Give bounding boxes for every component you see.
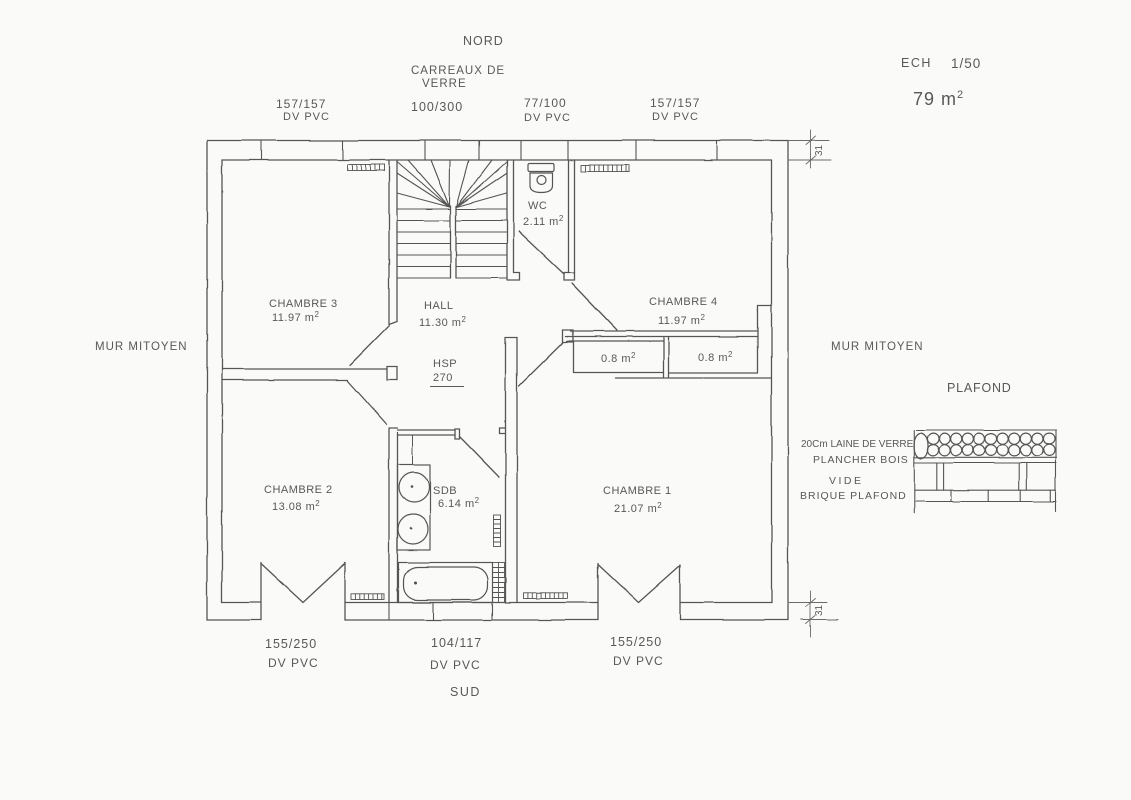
svg-text:MUR MITOYEN: MUR MITOYEN (831, 341, 924, 353)
svg-text:CARREAUX DE: CARREAUX DE (411, 65, 505, 77)
svg-text:13.08 m2: 13.08 m2 (272, 499, 320, 513)
svg-text:CHAMBRE 2: CHAMBRE 2 (264, 484, 333, 496)
svg-text:155/250: 155/250 (610, 635, 662, 649)
svg-text:DV PVC: DV PVC (652, 111, 699, 123)
svg-text:CHAMBRE 4: CHAMBRE 4 (649, 296, 718, 308)
svg-text:CHAMBRE 3: CHAMBRE 3 (269, 298, 338, 310)
svg-text:DV PVC: DV PVC (430, 658, 481, 672)
svg-text:DV PVC: DV PVC (613, 654, 664, 668)
svg-text:SDB: SDB (433, 485, 457, 497)
svg-text:0.8 m2: 0.8 m2 (698, 350, 733, 364)
svg-text:WC: WC (528, 200, 547, 212)
svg-text:CHAMBRE 1: CHAMBRE 1 (603, 485, 672, 497)
svg-text:155/250: 155/250 (265, 637, 317, 651)
svg-text:HALL: HALL (424, 300, 454, 312)
svg-text:BRIQUE PLAFOND: BRIQUE PLAFOND (800, 490, 907, 502)
svg-text:HSP: HSP (433, 358, 457, 370)
svg-text:VERRE: VERRE (422, 78, 467, 90)
svg-text:31: 31 (814, 144, 825, 156)
svg-text:270: 270 (433, 372, 453, 384)
svg-text:157/157: 157/157 (650, 96, 700, 110)
svg-text:MUR MITOYEN: MUR MITOYEN (95, 341, 188, 353)
svg-text:11.97 m2: 11.97 m2 (658, 313, 705, 327)
svg-text:21.07 m2: 21.07 m2 (614, 501, 662, 515)
svg-text:157/157: 157/157 (276, 97, 326, 111)
svg-text:DV PVC: DV PVC (524, 112, 571, 124)
svg-text:104/117: 104/117 (431, 636, 482, 650)
svg-text:DV PVC: DV PVC (268, 656, 319, 670)
svg-text:PLANCHER BOIS: PLANCHER BOIS (813, 454, 909, 466)
svg-text:79 m2: 79 m2 (913, 89, 964, 109)
svg-text:NORD: NORD (463, 34, 504, 48)
svg-text:DV PVC: DV PVC (283, 111, 330, 123)
svg-text:1/50: 1/50 (951, 56, 981, 71)
svg-text:0.8 m2: 0.8 m2 (601, 351, 636, 365)
svg-text:SUD: SUD (450, 685, 481, 699)
svg-text:100/300: 100/300 (411, 100, 463, 114)
svg-text:VIDE: VIDE (829, 475, 864, 487)
svg-text:ECH: ECH (901, 56, 932, 70)
svg-text:20Cm LAINE DE VERRE: 20Cm LAINE DE VERRE (801, 439, 914, 450)
svg-text:77/100: 77/100 (524, 96, 567, 110)
svg-text:PLAFOND: PLAFOND (947, 381, 1012, 395)
svg-text:6.14 m2: 6.14 m2 (438, 496, 480, 510)
svg-text:11.30 m2: 11.30 m2 (419, 315, 466, 329)
svg-text:31: 31 (814, 604, 825, 616)
svg-text:11.97 m2: 11.97 m2 (272, 310, 319, 324)
svg-text:2.11 m2: 2.11 m2 (523, 214, 564, 228)
